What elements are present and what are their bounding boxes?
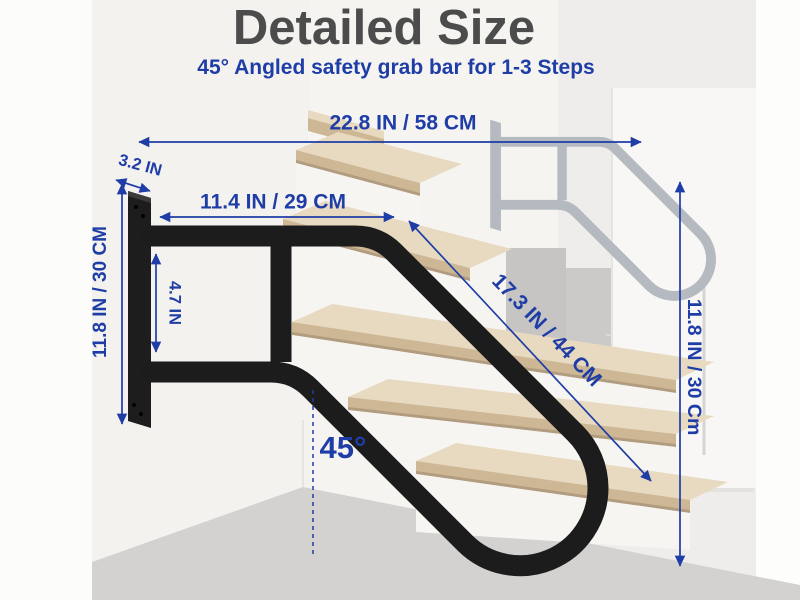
ghost-mounting-plate (490, 120, 501, 231)
diagram-canvas: 22.8 IN / 58 CM 3.2 IN 11.8 IN / 30 CM 1… (0, 0, 800, 600)
product-size-diagram: 22.8 IN / 58 CM 3.2 IN 11.8 IN / 30 CM 1… (0, 0, 800, 600)
left-height-dimension-label: 11.8 IN / 30 CM (90, 226, 111, 358)
plate-screw-hole (132, 403, 136, 407)
plate-screw-hole (141, 214, 145, 218)
top-width-dimension-label: 22.8 IN / 58 CM (329, 112, 476, 135)
page-subtitle: 45° Angled safety grab bar for 1-3 Steps (197, 56, 594, 79)
right-height-dimension-label: 11.8 IN / 30 Cm (683, 299, 705, 436)
right-wall-strip (756, 0, 800, 600)
plate-screw-hole (134, 205, 138, 209)
angle-label: 45° (320, 430, 367, 465)
plate-screw-hole (139, 412, 143, 416)
left-wall-strip (0, 0, 92, 600)
upper-bar-dimension-label: 11.4 IN / 29 CM (200, 191, 346, 214)
bar-gap-dimension-label: 4.7 IN (166, 281, 184, 325)
page-title: Detailed Size (233, 1, 535, 55)
